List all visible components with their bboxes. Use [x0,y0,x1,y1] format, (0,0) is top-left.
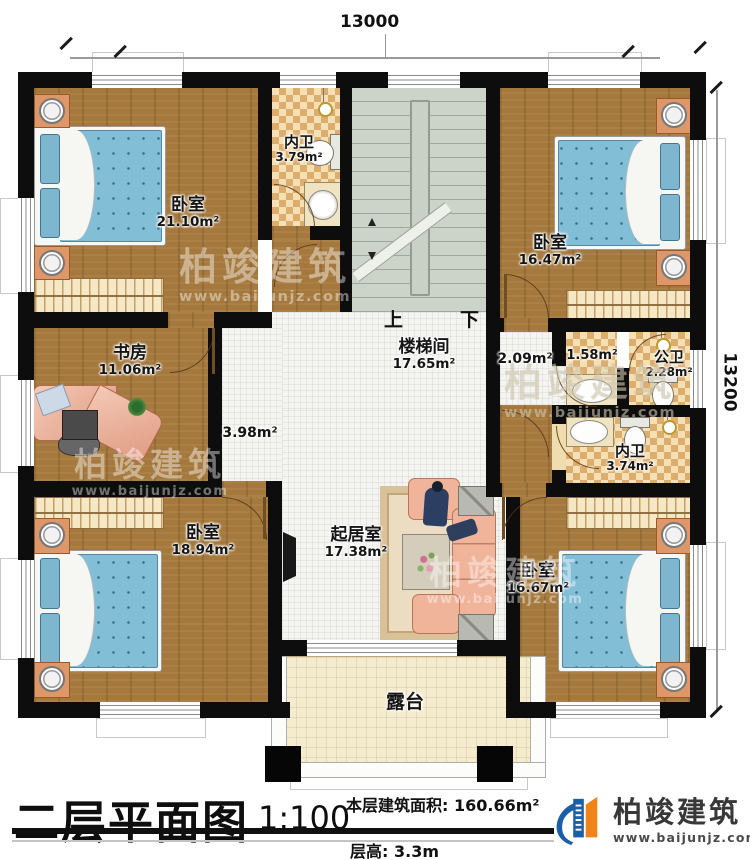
room-label-publicbath: 公卫 2.28m² [645,349,692,379]
window [18,380,34,466]
room-area: 3.74m² [606,460,653,473]
nightstand [656,518,692,554]
room-area: 1.58m² [566,349,617,364]
room-name: 内卫 [275,134,322,151]
area-label-hall-209: 2.09m² [497,352,552,368]
room-name: 卧室 [172,524,235,543]
room-area: 3.79m² [275,151,322,164]
nightstand [34,662,70,698]
window [18,198,34,292]
door-leaf [263,497,266,539]
stair-center-rail [410,100,430,296]
wardrobe [34,278,164,314]
sill-bottom-2 [550,718,668,738]
floor-hall-left [222,328,282,481]
lamp-icon [39,522,65,548]
dimension-line-top [70,57,660,59]
stair-up-label: 上 [384,305,403,332]
door-gap-bathtl [272,226,310,240]
wall-living-south-a [280,640,307,656]
wall-bedroomtl-right [258,72,272,240]
bed-topleft [34,126,164,244]
wall-bedroomtl-bottom-b [214,312,272,328]
lamp-cord [323,88,324,102]
room-area: 2.28m² [645,366,692,379]
lamp-icon [39,98,65,124]
sill-top-1 [92,52,184,74]
room-name: 内卫 [606,443,653,460]
room-area: 16.47m² [519,253,582,268]
room-label-study: 书房 11.06m² [99,344,162,378]
window [100,702,200,718]
floor-area-label: 本层建筑面积: [346,796,448,815]
brand-url: www.baijunjz.com [613,830,750,845]
window [18,560,34,658]
brand-logo-icon [552,792,606,850]
dimension-height-label: 13200 [720,352,740,411]
window [548,72,640,88]
room-area: 2.09m² [497,352,552,368]
lamp-icon [661,102,687,128]
floor-height-label: 层高: [350,842,388,860]
nightstand [34,94,70,128]
room-name: 书房 [99,344,162,363]
stair-arrow-down-icon [368,252,376,260]
dimension-leader-top [385,34,386,57]
terrace-pillar [265,746,301,782]
room-area: 16.67m² [507,581,570,596]
lamp-icon [661,254,687,280]
dimension-width-label: 13000 [340,12,399,32]
room-label-bedroom-topright: 卧室 16.47m² [519,234,582,268]
room-area: 17.65m² [393,357,456,372]
nightstand [656,662,692,698]
room-label-bath-bottomright: 内卫 3.74m² [606,443,653,473]
plant-icon [126,396,148,418]
sill-left-3 [0,558,20,660]
armchair-bottom [412,594,460,634]
bed-bottomright [560,550,686,670]
wall-publicbath-divider [617,368,629,405]
wall-bathbr-bottom-a [486,483,502,497]
door-gap-bedroombr [502,483,546,497]
brand-text: 柏竣建筑 www.baijunjz.com [613,798,750,845]
lamp-icon [661,666,687,692]
wall-bathbr-bottom-b [546,483,706,497]
door-leaf [504,274,507,318]
window [388,72,460,88]
floor-area-row: 本层建筑面积: 160.66m² [346,792,539,816]
lamp-icon [661,522,687,548]
room-label-stairwell: 楼梯间 17.65m² [393,338,456,372]
nightstand [656,250,692,286]
title-underline [12,828,554,834]
wall-bedroombl-right [268,481,282,718]
window [556,702,660,718]
door-gap-bedroomtr [504,318,548,332]
lamp-icon [39,666,65,692]
brand-logo: 柏竣建筑 www.baijunjz.com [552,792,750,850]
floor-height-value: 3.3m [394,842,439,860]
floor-plan-canvas: 卧室 21.10m² 内卫 3.79m² 卧室 16.47m² 楼梯间 17.6… [0,0,750,860]
dimension-tick [693,41,706,54]
room-label-bath-topleft: 内卫 3.79m² [275,134,322,164]
floor-area-value: 160.66m² [454,796,539,815]
room-label-livingroom: 起居室 17.38m² [325,526,388,560]
wall-stair-right [486,72,500,318]
wall-bedroomtr-bottom-a [486,318,504,332]
wall-bedroomtl-bottom-a [18,312,168,328]
bed-topright [556,136,686,248]
window [690,140,706,240]
door-leaf [212,328,215,374]
tv-icon [283,532,296,582]
stair-down-label: 下 [460,305,479,332]
door-gap-study [168,312,214,328]
nightstand [34,246,70,280]
room-area: 17.38m² [325,545,388,560]
room-name: 卧室 [157,196,220,215]
ceiling-lamp-icon [662,420,677,435]
room-name: 露台 [386,692,424,713]
sill-bottom-1 [96,718,206,738]
window [690,545,706,647]
sill-left-1 [0,198,20,294]
room-area: 21.10m² [157,215,220,230]
sill-left-2 [0,375,20,473]
room-name: 卧室 [519,234,582,253]
room-label-bedroom-topleft: 卧室 21.10m² [157,196,220,230]
wall-study-bottom-a [18,481,222,497]
room-name: 卧室 [507,562,570,581]
wall-hall158-left [552,332,566,366]
title-underline-thin [12,840,554,842]
lamp-icon [39,250,65,276]
door-leaf [502,497,505,539]
coffee-table [402,534,450,590]
area-label-hall-158: 1.58m² [566,349,617,364]
bed-pillow [40,134,60,184]
room-label-bedroom-bottomleft: 卧室 18.94m² [172,524,235,558]
wall-bedroomtr-bottom-b [548,318,706,332]
wall-bath-mid [566,405,690,417]
wall-study-right [208,328,222,481]
room-name: 起居室 [325,526,388,545]
wall-vestbr-right-a [552,405,566,424]
brand-name: 柏竣建筑 [613,798,750,827]
dimension-line-right [716,90,718,712]
wall-stair-left [340,72,352,312]
sliding-door [307,640,457,656]
room-name: 楼梯间 [393,338,456,357]
door-gap-bedroombl [222,481,266,497]
room-name: 公卫 [645,349,692,366]
stair-arrow-up-icon [368,218,376,226]
sill-top-2 [548,52,642,74]
person-figure [423,487,450,527]
room-label-terrace: 露台 [386,692,424,713]
room-area: 18.94m² [172,543,235,558]
room-area: 3.98m² [222,426,277,442]
room-label-bedroom-bottomright: 卧室 16.67m² [507,562,570,596]
monitor-icon [62,410,98,440]
nightstand [34,518,70,554]
room-area: 11.06m² [99,363,162,378]
bed-pillow [40,188,60,238]
area-label-hall-left: 3.98m² [222,426,277,442]
window [280,72,336,88]
dimension-tick [59,37,72,50]
ceiling-lamp-icon [318,102,333,117]
nightstand [656,98,692,134]
floor-hall-209 [500,332,552,405]
bed-bottomleft [34,550,160,670]
terrace-pillar [477,746,513,782]
window [92,72,182,88]
wardrobe [566,290,692,320]
